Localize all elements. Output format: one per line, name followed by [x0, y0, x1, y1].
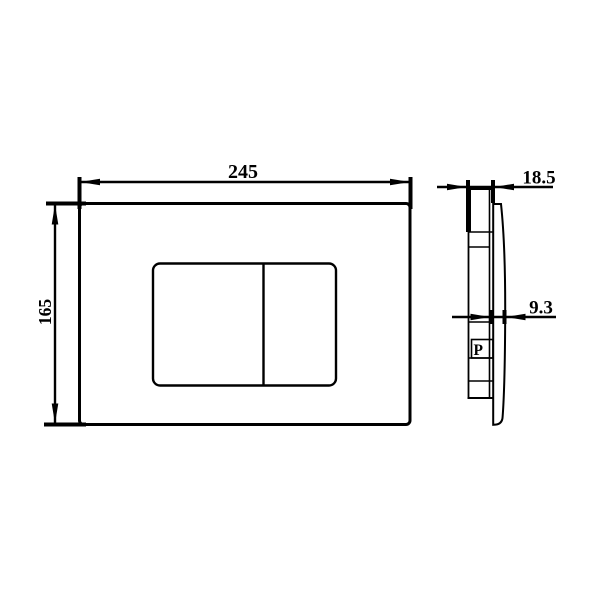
side-view: P	[466, 187, 505, 425]
dim-label-side-plate-depth: 9.3	[529, 298, 553, 319]
arrowhead-up-icon	[52, 205, 59, 225]
arrowhead-left-icon	[495, 184, 515, 191]
arrowhead-down-icon	[52, 404, 59, 424]
arrowhead-left-icon	[506, 314, 526, 321]
port-label: P	[474, 342, 484, 359]
technical-drawing-canvas: 245 165	[0, 0, 600, 600]
arrowhead-right-icon	[471, 314, 491, 321]
plate-outline	[80, 204, 411, 425]
dim-label-side-total-depth: 18.5	[522, 168, 555, 189]
arrowhead-left-icon	[80, 179, 100, 186]
dimension-side-total-depth: 18.5	[437, 168, 556, 204]
flush-plate-dimension-drawing: 245 165	[0, 0, 600, 600]
arrowhead-right-icon	[390, 179, 410, 186]
dimension-front-width: 245	[79, 161, 411, 209]
arrowhead-right-icon	[447, 184, 467, 191]
button-block-outline	[153, 264, 336, 386]
dim-label-front-width: 245	[228, 161, 258, 183]
front-view	[80, 204, 411, 425]
dim-label-front-height: 165	[35, 299, 55, 326]
